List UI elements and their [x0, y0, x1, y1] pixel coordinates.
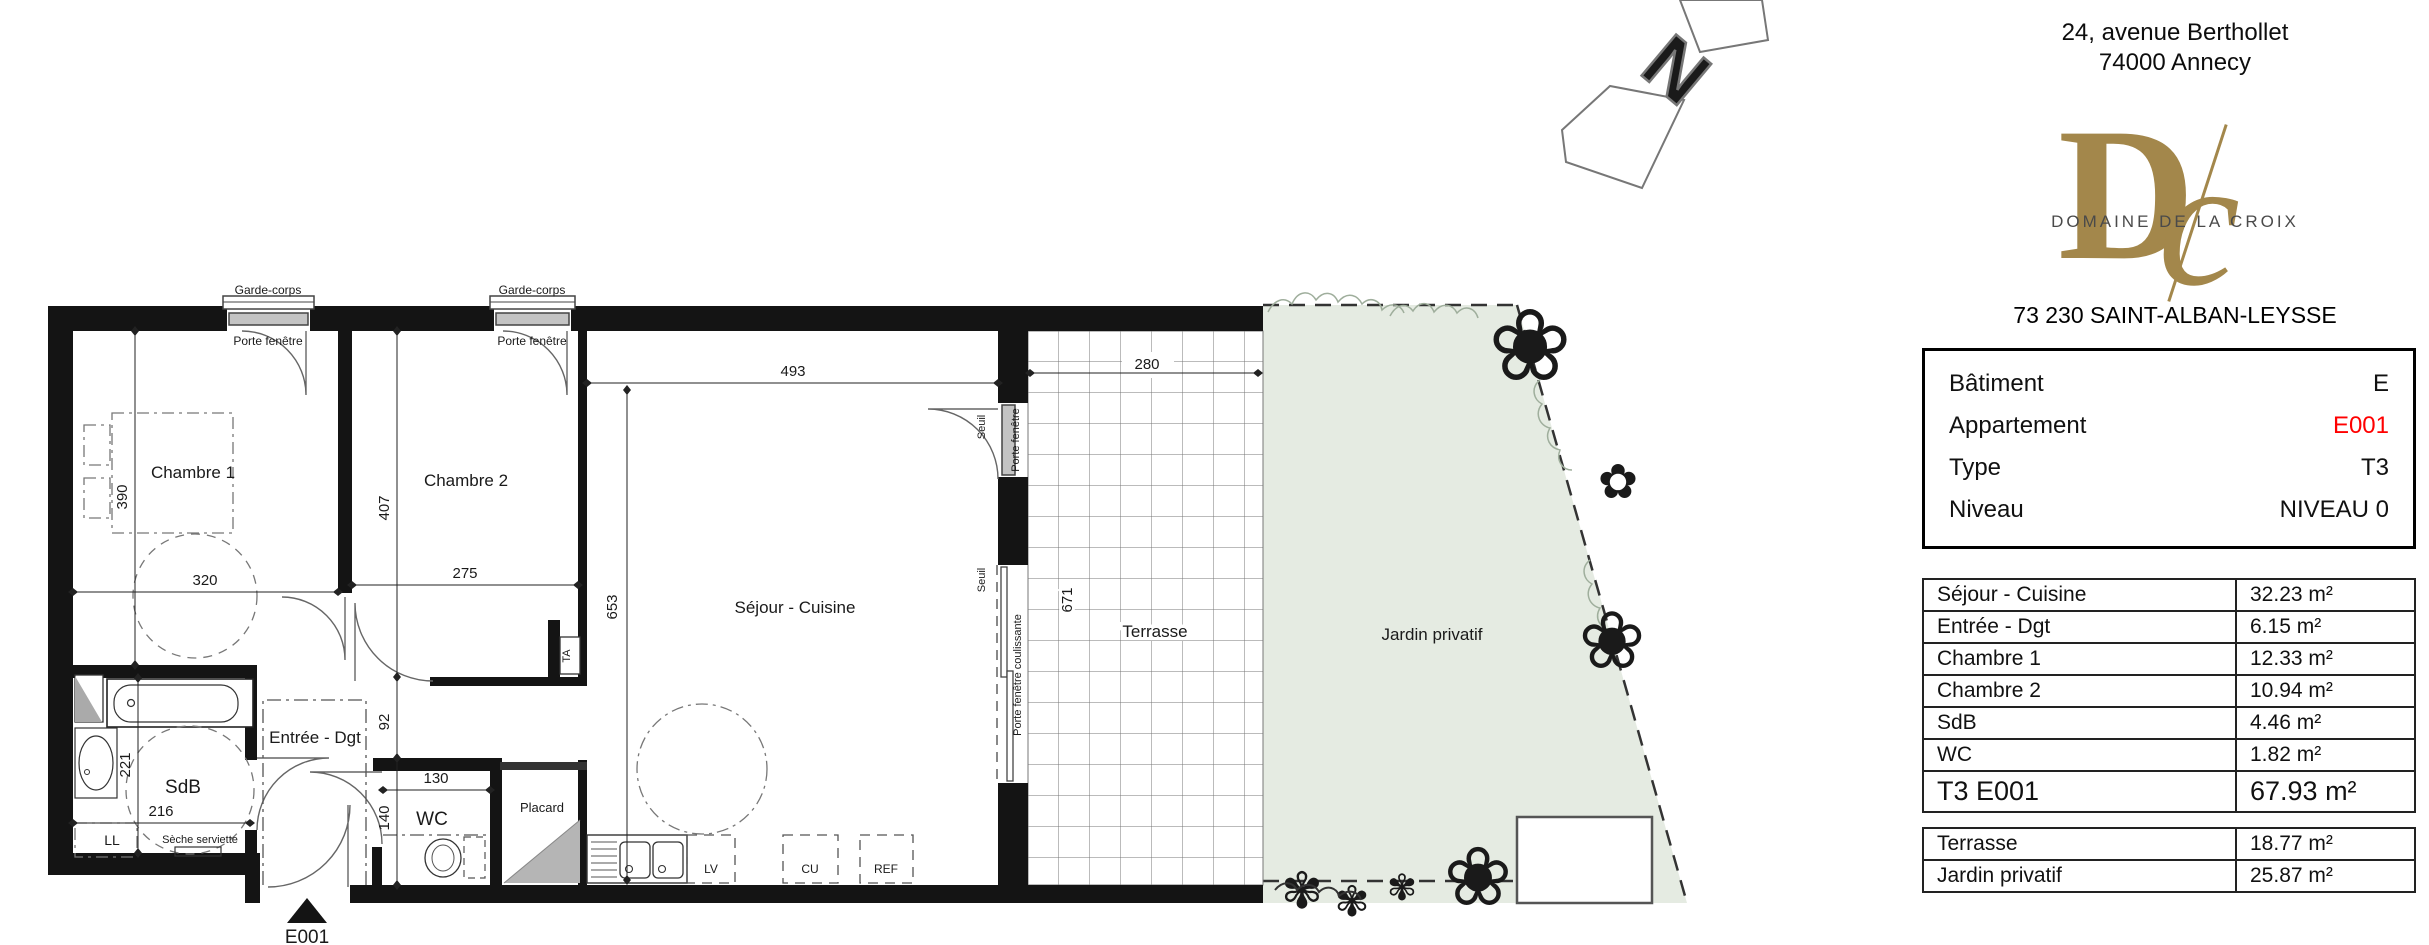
info-label: Appartement: [1949, 412, 2086, 440]
room-label-sejour: Séjour - Cuisine: [735, 598, 856, 617]
dim-221: 221: [117, 752, 134, 777]
north-indicator: N: [1562, 0, 1768, 188]
dim-130: 130: [423, 770, 448, 787]
area-room: Chambre 1: [1924, 644, 2237, 674]
sliding-door-terrasse: Seuil Porte fenêtre coulissante: [976, 565, 1024, 783]
floor-plan-drawing: ❀ ❀ ❀ ✿ ✾ ✾ ✾ Jardin privatif Terrasse 6…: [0, 0, 1920, 945]
table-row-total: T3 E001 67.93 m²: [1924, 772, 2414, 811]
area-value: 12.33 m²: [2237, 644, 2414, 674]
dim-493: 493: [780, 363, 805, 380]
dim-92: 92: [376, 714, 393, 731]
project-city: 73 230 SAINT-ALBAN-LEYSSE: [1990, 302, 2360, 329]
dim-280: 280: [1134, 356, 1159, 373]
label-ll: LL: [104, 832, 120, 848]
info-value-apartment-code: E001: [2333, 412, 2389, 440]
label-seuil-1: Seuil: [976, 415, 988, 439]
area-room: Entrée - Dgt: [1924, 612, 2237, 642]
info-row-type: Type T3: [1925, 447, 2413, 489]
label-porte-fenetre-3: Porte fenêtre: [1010, 408, 1022, 472]
developer-logo: D c DOMAINE DE LA CROIX: [2040, 112, 2310, 312]
dim-140: 140: [376, 805, 393, 830]
window-chambre2: Garde-corps Porte fenêtre: [490, 283, 575, 395]
dim-275: 275: [452, 565, 477, 582]
dim-216: 216: [148, 803, 173, 820]
label-porte-fenetre-2: Porte fenêtre: [497, 334, 567, 348]
svg-text:❀: ❀: [1444, 832, 1513, 923]
room-label-chambre1: Chambre 1: [151, 463, 235, 482]
area-value: 18.77 m²: [2237, 829, 2414, 859]
washbasin-counter: [75, 728, 117, 798]
placard: Placard: [504, 800, 580, 883]
room-label-entree: Entrée - Dgt: [269, 728, 361, 747]
room-label-terrasse: Terrasse: [1122, 622, 1187, 641]
sejour-turning-circle: [637, 704, 767, 834]
area-room: WC: [1924, 740, 2237, 770]
logo-brand-name: DOMAINE DE LA CROIX: [1995, 212, 2355, 232]
address-line1: 24, avenue Berthollet: [1990, 18, 2360, 48]
sdb-fixtures: [75, 675, 254, 857]
window-sejour-terrasse: Seuil Porte fenêtre: [928, 405, 1022, 479]
area-room: Terrasse: [1924, 829, 2237, 859]
area-value: 4.46 m²: [2237, 708, 2414, 738]
svg-text:✾: ✾: [1387, 867, 1417, 908]
label-garde-corps-1: Garde-corps: [235, 283, 302, 297]
info-label: Niveau: [1949, 496, 2024, 524]
room-label-jardin: Jardin privatif: [1381, 625, 1482, 644]
room-label-sdb: SdB: [165, 777, 201, 798]
kitchen-fixtures: LV CU REF: [587, 835, 913, 883]
room-label-chambre2: Chambre 2: [424, 471, 508, 490]
areas-table: Séjour - Cuisine 32.23 m² Entrée - Dgt 6…: [1922, 578, 2416, 813]
total-value: 67.93 m²: [2237, 772, 2414, 811]
table-row: Entrée - Dgt 6.15 m²: [1924, 612, 2414, 644]
table-row: Terrasse 18.77 m²: [1924, 829, 2414, 861]
label-seche-serviette: Sèche serviette: [162, 834, 238, 846]
info-value: NIVEAU 0: [2280, 496, 2389, 524]
svg-text:✿: ✿: [1598, 456, 1638, 509]
info-label: Bâtiment: [1949, 370, 2044, 398]
area-value: 32.23 m²: [2237, 580, 2414, 610]
dim-390: 390: [114, 484, 131, 509]
area-room: Séjour - Cuisine: [1924, 580, 2237, 610]
area-value: 1.82 m²: [2237, 740, 2414, 770]
wc-fixtures: [425, 837, 485, 878]
info-value: E: [2373, 370, 2389, 398]
ta-niche: TA: [560, 637, 580, 674]
dim-653: 653: [604, 594, 621, 619]
area-room: Jardin privatif: [1924, 861, 2237, 891]
area-room: SdB: [1924, 708, 2237, 738]
area-value: 25.87 m²: [2237, 861, 2414, 891]
table-row: Chambre 2 10.94 m²: [1924, 676, 2414, 708]
table-row: Chambre 1 12.33 m²: [1924, 644, 2414, 676]
label-fridge: REF: [874, 862, 898, 876]
table-row: SdB 4.46 m²: [1924, 708, 2414, 740]
dim-671: 671: [1059, 587, 1076, 612]
label-cooker: CU: [801, 862, 818, 876]
dim-320: 320: [192, 572, 217, 589]
label-dishwasher: LV: [704, 862, 718, 876]
room-label-placard: Placard: [520, 800, 564, 815]
entry-marker: E001: [285, 898, 329, 945]
label-ta: TA: [561, 649, 573, 663]
floorplan-sheet: ❀ ❀ ❀ ✿ ✾ ✾ ✾ Jardin privatif Terrasse 6…: [0, 0, 2429, 945]
dim-407: 407: [376, 495, 393, 520]
chambre1-turning-circle: [133, 534, 257, 658]
garden-area: ❀ ❀ ❀ ✿ ✾ ✾ ✾ Jardin privatif: [1263, 290, 1687, 925]
svg-text:✾: ✾: [1281, 863, 1323, 919]
outdoor-areas-table: Terrasse 18.77 m² Jardin privatif 25.87 …: [1922, 827, 2416, 893]
label-seuil-2: Seuil: [976, 568, 988, 592]
garden-slab: [1517, 817, 1652, 903]
label-porte-fenetre-coulissante: Porte fenêtre coulissante: [1012, 614, 1024, 736]
room-label-wc: WC: [416, 809, 448, 830]
area-value: 10.94 m²: [2237, 676, 2414, 706]
total-label: T3 E001: [1924, 772, 2237, 811]
svg-text:✾: ✾: [1334, 878, 1369, 925]
info-row-batiment: Bâtiment E: [1925, 363, 2413, 405]
table-row: WC 1.82 m²: [1924, 740, 2414, 772]
bathtub: [107, 679, 253, 727]
entry-code-label: E001: [285, 927, 329, 945]
label-porte-fenetre-1: Porte fenêtre: [233, 334, 303, 348]
window-chambre1: Garde-corps Porte fenêtre: [223, 283, 314, 395]
info-row-appartement: Appartement E001: [1925, 405, 2413, 447]
table-row: Séjour - Cuisine 32.23 m²: [1924, 580, 2414, 612]
svg-text:❀: ❀: [1578, 596, 1645, 685]
table-row: Jardin privatif 25.87 m²: [1924, 861, 2414, 891]
project-address: 24, avenue Berthollet 74000 Annecy: [1990, 18, 2360, 78]
terrasse-area: Terrasse 671 280: [1028, 331, 1263, 885]
svg-text:❀: ❀: [1488, 290, 1572, 402]
label-garde-corps-2: Garde-corps: [499, 283, 566, 297]
info-label: Type: [1949, 454, 2001, 482]
unit-info-box: Bâtiment E Appartement E001 Type T3 Nive…: [1922, 348, 2416, 549]
info-value: T3: [2361, 454, 2389, 482]
address-line2: 74000 Annecy: [1990, 48, 2360, 78]
area-room: Chambre 2: [1924, 676, 2237, 706]
info-row-niveau: Niveau NIVEAU 0: [1925, 489, 2413, 531]
area-value: 6.15 m²: [2237, 612, 2414, 642]
